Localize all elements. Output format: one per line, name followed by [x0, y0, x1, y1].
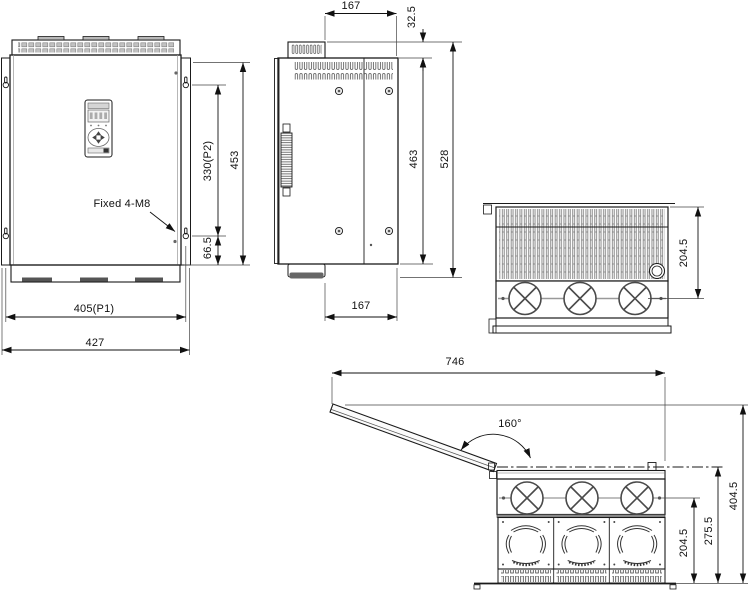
dim-label-open-angle: 160° — [498, 418, 522, 430]
dim-label-open-total-height: 404.5 — [728, 482, 740, 511]
top-view — [483, 204, 675, 334]
dim-label-side-cap-offset: 32.5 — [406, 6, 418, 28]
keyhole-slot — [3, 77, 188, 239]
front-body — [10, 55, 181, 265]
drawing-canvas: Fixed 4-M8 405(P1) 427 330(P2) 453 66.5 … — [0, 0, 750, 591]
dim-label-front-overall-height: 453 — [229, 151, 241, 170]
front-top-vents — [18, 43, 174, 53]
fan-symbol — [511, 482, 653, 514]
side-vent-slots — [294, 62, 393, 80]
fan-symbol — [509, 283, 651, 315]
open-module-section — [498, 518, 665, 570]
side-view — [275, 42, 399, 279]
open-cover-view — [330, 404, 723, 589]
dim-label-side-overall-height: 528 — [439, 150, 451, 169]
fixed-4-m8-label: Fixed 4-M8 — [93, 198, 150, 210]
drawing-linework — [0, 0, 750, 591]
dim-label-open-fan-height: 204.5 — [678, 529, 690, 558]
open-rim — [497, 471, 665, 480]
dim-label-front-mount-height: 330(P2) — [202, 141, 214, 182]
dim-label-open-width: 746 — [446, 356, 465, 368]
top-heatsink-fins — [499, 209, 665, 279]
open-cover-door — [330, 404, 497, 472]
side-hinge — [281, 133, 292, 187]
dim-label-front-overall-width: 427 — [86, 337, 105, 349]
keypad-label-bar — [88, 103, 109, 109]
front-view — [2, 37, 191, 283]
keypad — [85, 100, 112, 157]
dim-label-front-mount-width: 405(P1) — [74, 303, 115, 315]
dim-label-front-bottom-offset: 66.5 — [202, 237, 214, 259]
dim-label-side-top-depth: 167 — [342, 0, 361, 12]
dim-label-side-bottom-depth: 167 — [352, 300, 371, 312]
dim-label-top-depth: 204.5 — [678, 239, 690, 268]
dim-label-side-body-height: 463 — [408, 150, 420, 169]
fixed-leader-line — [150, 212, 175, 232]
keypad-arrow-pad — [88, 129, 109, 147]
dim-label-open-body-height: 275.5 — [703, 517, 715, 546]
